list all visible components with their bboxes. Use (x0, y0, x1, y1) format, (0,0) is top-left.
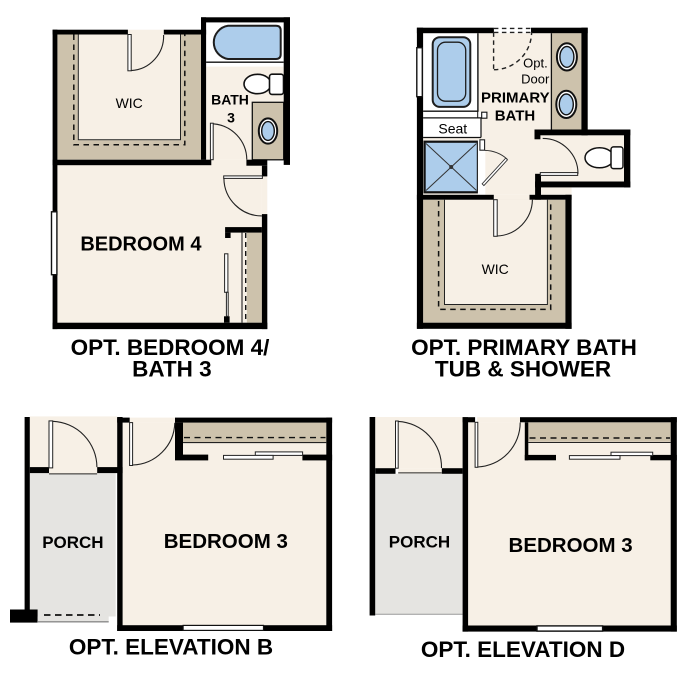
svg-text:PRIMARY: PRIMARY (481, 89, 550, 106)
svg-text:WIC: WIC (116, 95, 143, 111)
svg-text:BEDROOM 4: BEDROOM 4 (80, 233, 202, 255)
svg-text:BATH: BATH (495, 108, 536, 125)
svg-text:BATH 3: BATH 3 (132, 356, 212, 381)
svg-text:PORCH: PORCH (389, 532, 450, 551)
svg-text:BATH: BATH (211, 91, 249, 107)
svg-text:Seat: Seat (438, 121, 467, 137)
svg-text:3: 3 (227, 110, 235, 126)
svg-text:WIC: WIC (482, 261, 509, 277)
svg-text:BEDROOM 3: BEDROOM 3 (509, 534, 633, 557)
svg-text:Opt.: Opt. (523, 55, 548, 70)
svg-text:TUB & SHOWER: TUB & SHOWER (435, 357, 611, 382)
svg-text:Door: Door (521, 72, 550, 87)
svg-text:OPT. ELEVATION D: OPT. ELEVATION D (421, 637, 625, 662)
svg-text:PORCH: PORCH (42, 533, 103, 552)
svg-text:BEDROOM 3: BEDROOM 3 (164, 530, 288, 553)
svg-text:OPT. ELEVATION B: OPT. ELEVATION B (69, 635, 273, 660)
